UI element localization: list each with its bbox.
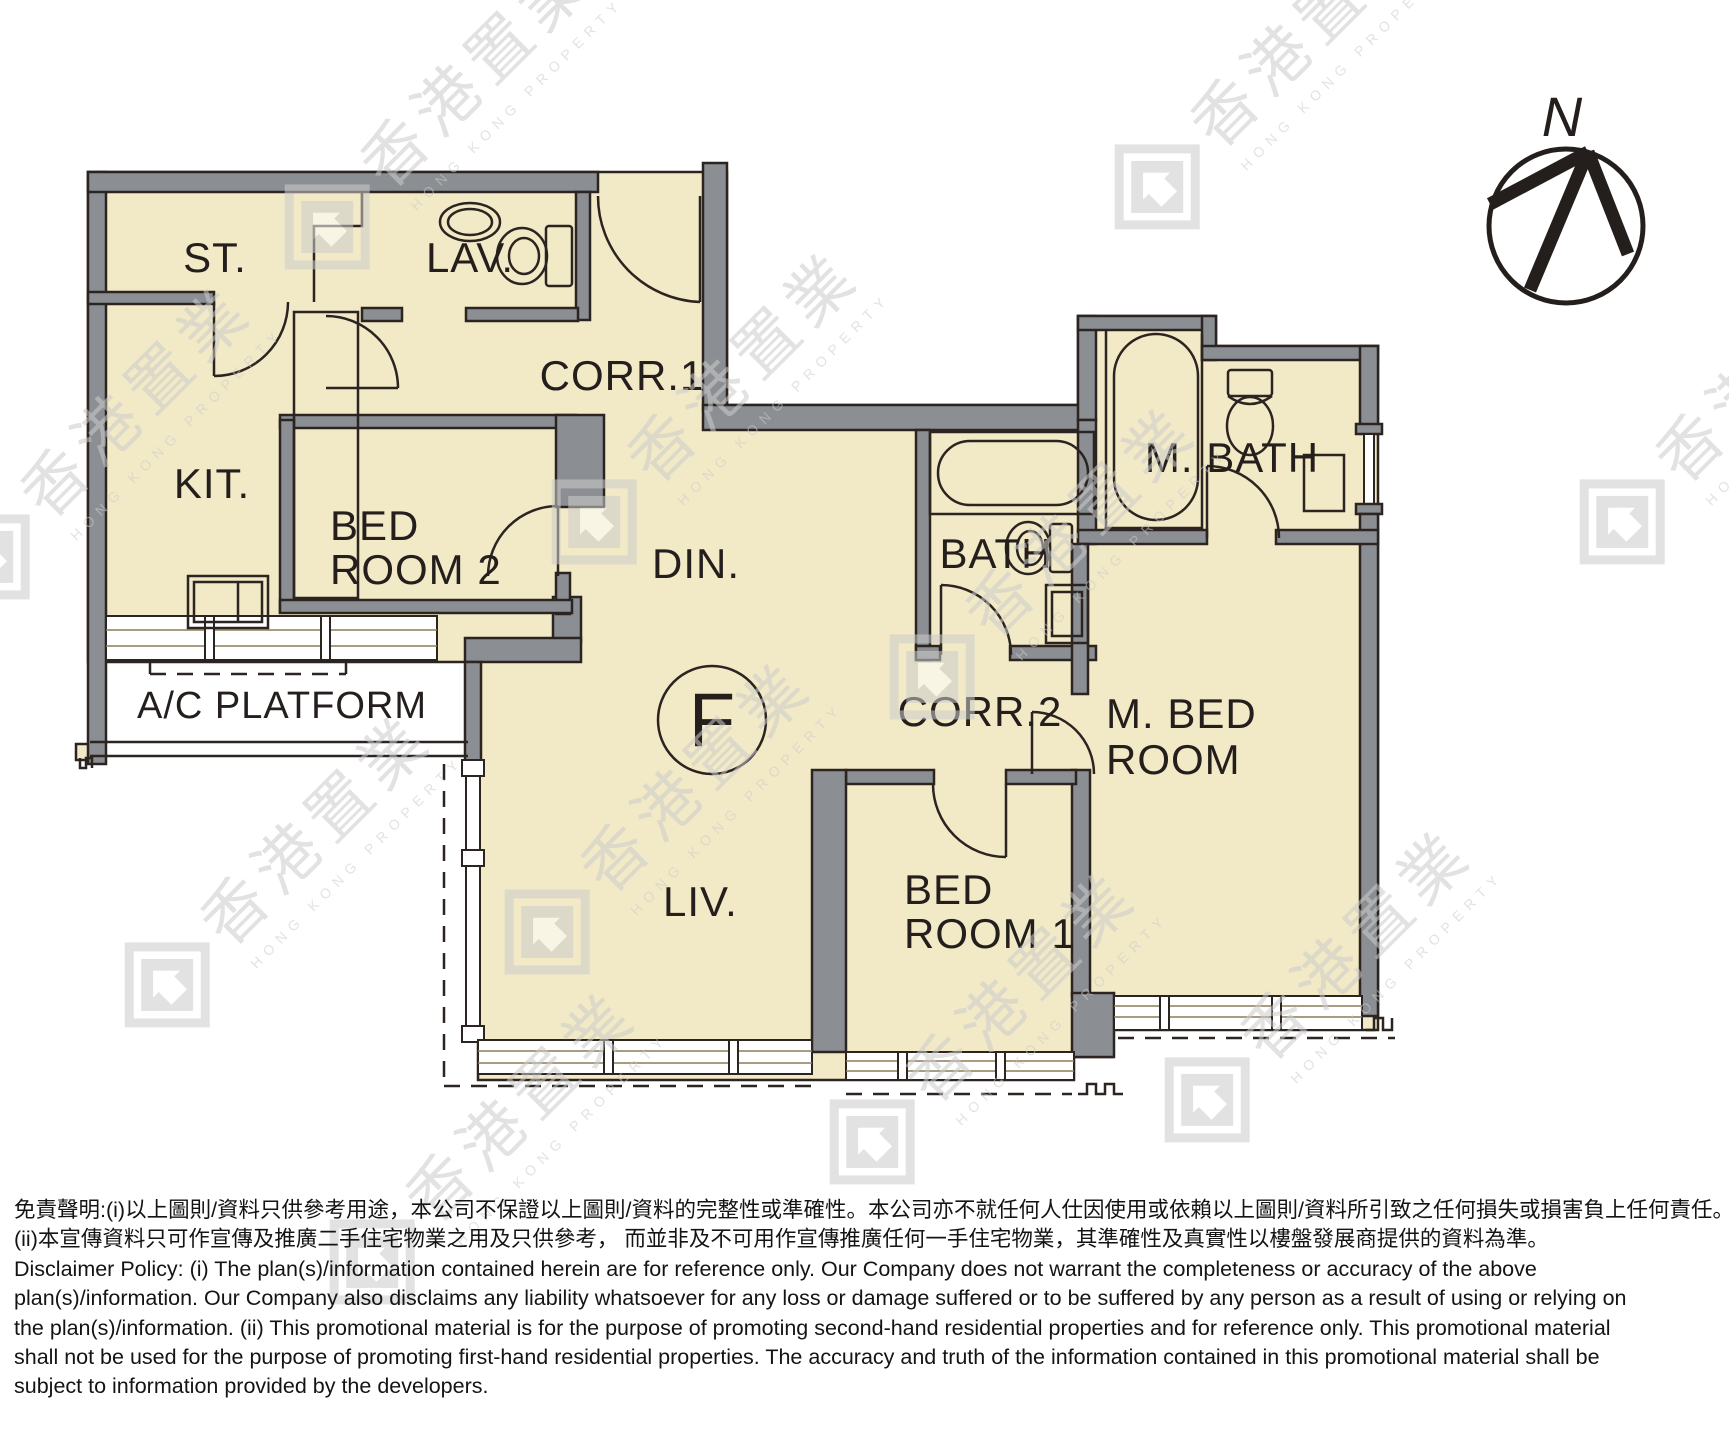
disclaimer-line: shall not be used for the purpose of pro… [14, 1343, 1720, 1372]
disclaimer-line: the plan(s)/information. (ii) This promo… [14, 1314, 1720, 1343]
window-mbath-east [1364, 434, 1374, 504]
room-label-lav: LAV. [426, 234, 514, 281]
room-label-liv: LIV. [663, 878, 738, 925]
compass-north-label: N [1542, 85, 1583, 148]
window-liv-west [462, 760, 484, 1042]
room-label-din: DIN. [652, 540, 740, 587]
disclaimer-line: (ii)本宣傳資料只可作宣傳及推廣二手住宅物業之用及只供參考， 而並非及不可用作… [14, 1225, 1720, 1254]
disclaimer-line: plan(s)/information. Our Company also di… [14, 1284, 1720, 1313]
compass-icon: N [1489, 85, 1643, 303]
room-label-mbed-line1: M. BED [1106, 690, 1257, 737]
disclaimer-line: Disclaimer Policy: (i) The plan(s)/infor… [14, 1255, 1720, 1284]
room-label-kit: KIT. [174, 460, 250, 507]
room-label-bedroom2-line1: BED [330, 502, 419, 549]
window-kit-bed2 [106, 616, 437, 660]
disclaimer-line: subject to information provided by the d… [14, 1372, 1720, 1401]
disclaimer: 免責聲明:(i)以上圖則/資料只供參考用途，本公司不保證以上圖則/資料的完整性或… [14, 1196, 1720, 1402]
ac-dashed-outline [150, 662, 346, 674]
break-mark [1078, 1084, 1123, 1094]
disclaimer-line: 免責聲明:(i)以上圖則/資料只供參考用途，本公司不保證以上圖則/資料的完整性或… [14, 1196, 1720, 1225]
room-label-bedroom2-line2: ROOM 2 [330, 546, 502, 593]
floor-plan-page: 香港置業 HONG KONG PROPERTY [0, 0, 1729, 1430]
room-label-mbed-line2: ROOM [1106, 736, 1241, 783]
room-label-bedroom1-line1: BED [904, 866, 993, 913]
